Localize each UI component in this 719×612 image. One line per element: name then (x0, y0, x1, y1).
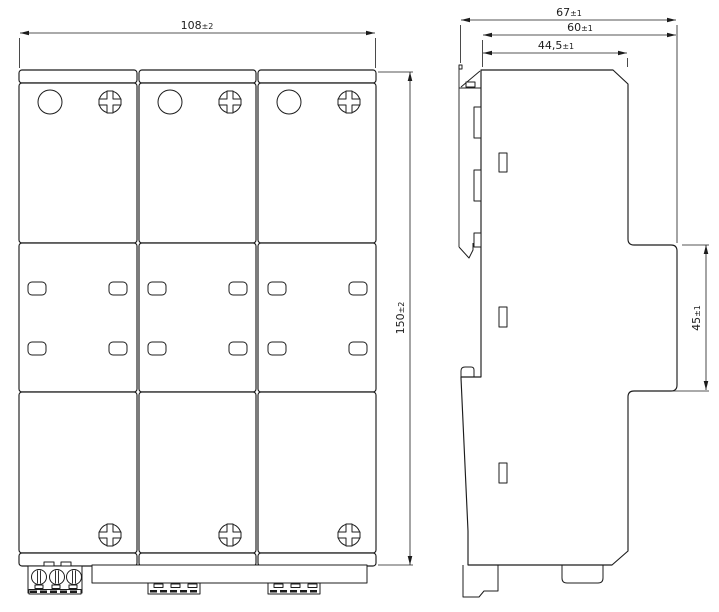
screw-terminal (67, 570, 82, 585)
bottom-foot-tab (463, 565, 498, 597)
arrowhead (667, 18, 676, 23)
terminal-block-2 (148, 583, 200, 594)
terminal-block-1 (28, 562, 82, 594)
phillips-screw (338, 524, 360, 546)
side-body-profile (461, 70, 677, 565)
arrowhead (366, 31, 375, 36)
arrowhead (704, 381, 709, 390)
dim-side-body-depth-label: 60±1 (567, 21, 593, 34)
din-clip-hook (459, 243, 473, 258)
module-2 (139, 70, 256, 566)
arrowhead (618, 51, 627, 56)
arrowhead (483, 33, 492, 38)
arrowhead (483, 51, 492, 56)
phillips-screw (99, 91, 121, 113)
module-1 (19, 70, 137, 566)
dim-side-front-depth: 44,5±1 (483, 39, 628, 67)
dim-side-front-depth-label: 44,5±1 (538, 39, 574, 52)
dim-front-width-label: 108±2 (181, 19, 214, 32)
phillips-screw (219, 524, 241, 546)
phillips-screw (338, 91, 360, 113)
front-cover-strip (459, 65, 481, 258)
arrowhead (408, 72, 413, 81)
surge-protector-dimension-drawing: 108±2 150±2 67±1 60±1 44,5±1 (0, 0, 719, 612)
arrowhead (461, 18, 470, 23)
base-band (92, 565, 367, 583)
arrowhead (20, 31, 29, 36)
dim-front-height: 150±2 (378, 72, 413, 565)
terminal-side-profile (562, 565, 603, 583)
dim-side-body-depth: 60±1 (483, 21, 677, 67)
terminal-block-3 (268, 583, 320, 594)
side-view (459, 65, 677, 597)
front-view (19, 70, 376, 594)
dim-front-width: 108±2 (20, 19, 376, 68)
arrowhead (408, 556, 413, 565)
arrowhead (704, 245, 709, 254)
phillips-screw (219, 91, 241, 113)
technical-drawing-page: 108±2 150±2 67±1 60±1 44,5±1 (0, 0, 719, 612)
screw-terminal (32, 570, 47, 585)
arrowhead (667, 33, 676, 38)
screw-terminal (50, 570, 65, 585)
dim-side-rail-recess-label: 45±1 (690, 305, 703, 331)
dim-side-total-depth-label: 67±1 (556, 6, 582, 19)
step-ledge (461, 367, 474, 377)
dim-front-height-label: 150±2 (394, 302, 407, 335)
phillips-screw (99, 524, 121, 546)
module-3 (258, 70, 376, 566)
